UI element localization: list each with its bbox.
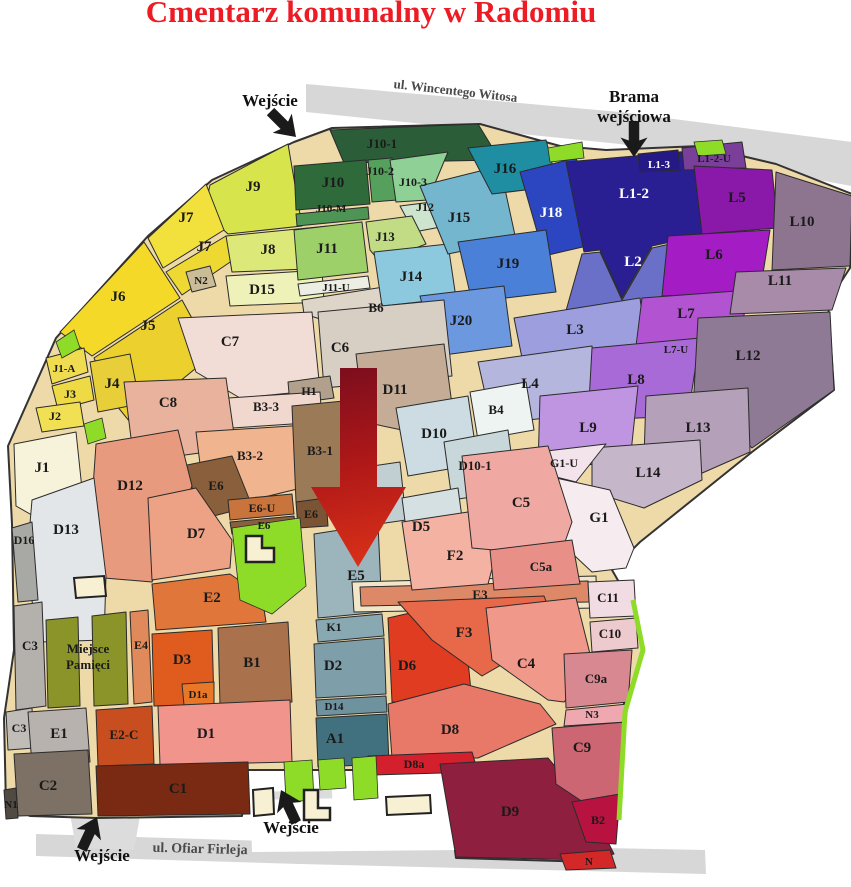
annotation-label-4: Wejście: [263, 818, 319, 837]
section-label-J13: J13: [375, 229, 395, 244]
section-label-D6: D6: [398, 658, 417, 674]
section-label-C5: C5: [512, 495, 530, 511]
section-label-B3-2: B3-2: [237, 448, 263, 463]
section-label-L12: L12: [735, 348, 760, 364]
section-label-L13: L13: [685, 420, 710, 436]
section-label-F2: F2: [447, 548, 464, 564]
section-label-B2: B2: [591, 813, 605, 827]
section-label-L7: L7: [677, 306, 695, 322]
section-label-E4: E4: [134, 638, 148, 652]
section-label-G1-U: G1-U: [550, 456, 578, 470]
section-label-G1: G1: [589, 510, 608, 526]
section-label-K1: K1: [326, 620, 341, 634]
section-label-E1: E1: [50, 726, 68, 742]
section-label-D1a: D1a: [189, 689, 208, 701]
section-label-D10: D10: [421, 426, 447, 442]
section-label-C8: C8: [159, 395, 177, 411]
section-label-J10-2: J10-2: [366, 164, 394, 178]
section-label-J15: J15: [448, 210, 471, 226]
section-label-D3: D3: [173, 652, 191, 668]
section-label-D11: D11: [382, 382, 407, 398]
section-E4: [130, 610, 152, 704]
section-label-C9a: C9a: [585, 671, 608, 686]
section-label-L9: L9: [579, 420, 597, 436]
annotation-label-1: Brama: [609, 87, 660, 106]
section-label-L10: L10: [789, 214, 814, 230]
section-label-E2: E2: [203, 590, 221, 606]
section-label-L7-U: L7-U: [664, 344, 689, 356]
section-label-J12: J12: [416, 200, 434, 214]
section-label-C5a: C5a: [530, 559, 553, 574]
section-label-L3: L3: [566, 322, 584, 338]
section-label-D2: D2: [324, 658, 342, 674]
section-label-N: N: [585, 856, 593, 868]
section-label-D14: D14: [325, 701, 344, 713]
section-label-C2: C2: [39, 778, 57, 794]
section-label-J1-A: J1-A: [53, 363, 76, 375]
section-C3: [14, 602, 46, 710]
section-label-E2-C: E2-C: [110, 727, 139, 742]
section-label-L4: L4: [521, 376, 539, 392]
section-label-L14: L14: [635, 465, 661, 481]
section-label-C6: C6: [331, 340, 350, 356]
section-label-L5: L5: [728, 190, 746, 206]
section-label-E6-U: E6-U: [249, 501, 276, 515]
section-label-J18: J18: [540, 205, 563, 221]
section-label-D8: D8: [441, 722, 459, 738]
section-label-A1: A1: [326, 731, 344, 747]
section-label-D15: D15: [249, 282, 275, 298]
section-label-D12: D12: [117, 478, 143, 494]
section-label-J11: J11: [316, 241, 338, 257]
section-label-J16: J16: [494, 161, 517, 177]
building: [253, 788, 274, 816]
cemetery-map: ul. Wincentego Witosaul. Ofiar FirlejaJ9…: [0, 0, 851, 887]
memorial-label-0: Miejsce: [67, 641, 110, 656]
section-label-N1: N1: [4, 799, 17, 811]
section-label-J10-1: J10-1: [367, 136, 397, 151]
section-label-D10-1: D10-1: [458, 458, 491, 473]
section-label-J11-U: J11-U: [322, 282, 350, 294]
section-label-J2: J2: [49, 409, 61, 423]
section-label-J7a: J7: [179, 210, 195, 226]
section-label-E3: E3: [472, 587, 488, 602]
section-label-B4: B4: [488, 402, 504, 417]
section-label-L11: L11: [768, 273, 792, 289]
section-label-J7b: J7: [197, 239, 213, 255]
section-label-C7: C7: [221, 334, 240, 350]
section-label-J10: J10: [322, 175, 345, 191]
section-label-B3-3: B3-3: [253, 399, 280, 414]
section-label-B3-1: B3-1: [307, 443, 333, 458]
section-label-B1: B1: [243, 655, 261, 671]
section-label-N3: N3: [585, 709, 599, 721]
section-label-L1-2-U: L1-2-U: [697, 153, 731, 165]
street-label: ul. Ofiar Firleja: [152, 841, 247, 858]
memorial-label-1: Pamięci: [66, 657, 110, 672]
section-label-D7: D7: [187, 526, 206, 542]
section-label-B6: B6: [368, 300, 384, 315]
section-label-L6: L6: [705, 247, 723, 263]
annotation-label-2: wejściowa: [597, 107, 671, 126]
section-label-J10-M: J10-M: [316, 203, 347, 215]
section-label-L8: L8: [627, 372, 645, 388]
section-label-E5: E5: [347, 568, 365, 584]
section-label-C9: C9: [573, 740, 591, 756]
section-label-J19: J19: [497, 256, 520, 272]
section-D1: [158, 700, 292, 765]
section-label-J20: J20: [450, 313, 473, 329]
section-label-C4: C4: [517, 656, 536, 672]
annotation-label-0: Wejście: [242, 91, 298, 110]
section-label-D13: D13: [53, 522, 79, 538]
green-area: [318, 758, 346, 790]
section-label-E6b: E6: [258, 520, 271, 532]
section-label-D5: D5: [412, 519, 430, 535]
section-label-F3: F3: [456, 625, 473, 641]
section-label-J8: J8: [261, 242, 276, 258]
section-label-J3: J3: [64, 387, 76, 401]
section-label-L1-3: L1-3: [648, 159, 671, 171]
section-label-N2: N2: [194, 275, 208, 287]
section-label-J1: J1: [35, 460, 50, 476]
section-label-C3: C3: [22, 638, 38, 653]
section-label-J9: J9: [246, 179, 261, 195]
section-label-E6: E6: [208, 478, 224, 493]
section-label-C1: C1: [169, 781, 187, 797]
section-label-C10: C10: [599, 626, 621, 641]
map-canvas: ul. Wincentego Witosaul. Ofiar FirlejaJ9…: [0, 0, 851, 887]
section-label-J6: J6: [111, 289, 127, 305]
annotation-label-3: Wejście: [74, 846, 130, 865]
section-label-D16: D16: [14, 533, 35, 547]
section-label-E6c: E6: [304, 507, 318, 521]
section-label-C3b: C3: [12, 721, 27, 735]
section-label-C11: C11: [597, 590, 619, 605]
section-label-J4: J4: [105, 376, 121, 392]
section-label-D1: D1: [197, 726, 215, 742]
building: [74, 576, 106, 598]
map-title: Cmentarz komunalny w Radomiu: [146, 0, 596, 30]
section-label-J10-3: J10-3: [399, 175, 427, 189]
section-label-J5: J5: [141, 318, 156, 334]
building: [386, 795, 431, 815]
section-label-D8a: D8a: [404, 757, 425, 771]
section-label-J14: J14: [400, 269, 423, 285]
section-label-L2: L2: [624, 254, 642, 270]
green-area: [352, 756, 378, 800]
section-label-L1-2: L1-2: [619, 186, 649, 202]
section-label-H1: H1: [301, 384, 316, 398]
section-label-D9: D9: [501, 804, 519, 820]
